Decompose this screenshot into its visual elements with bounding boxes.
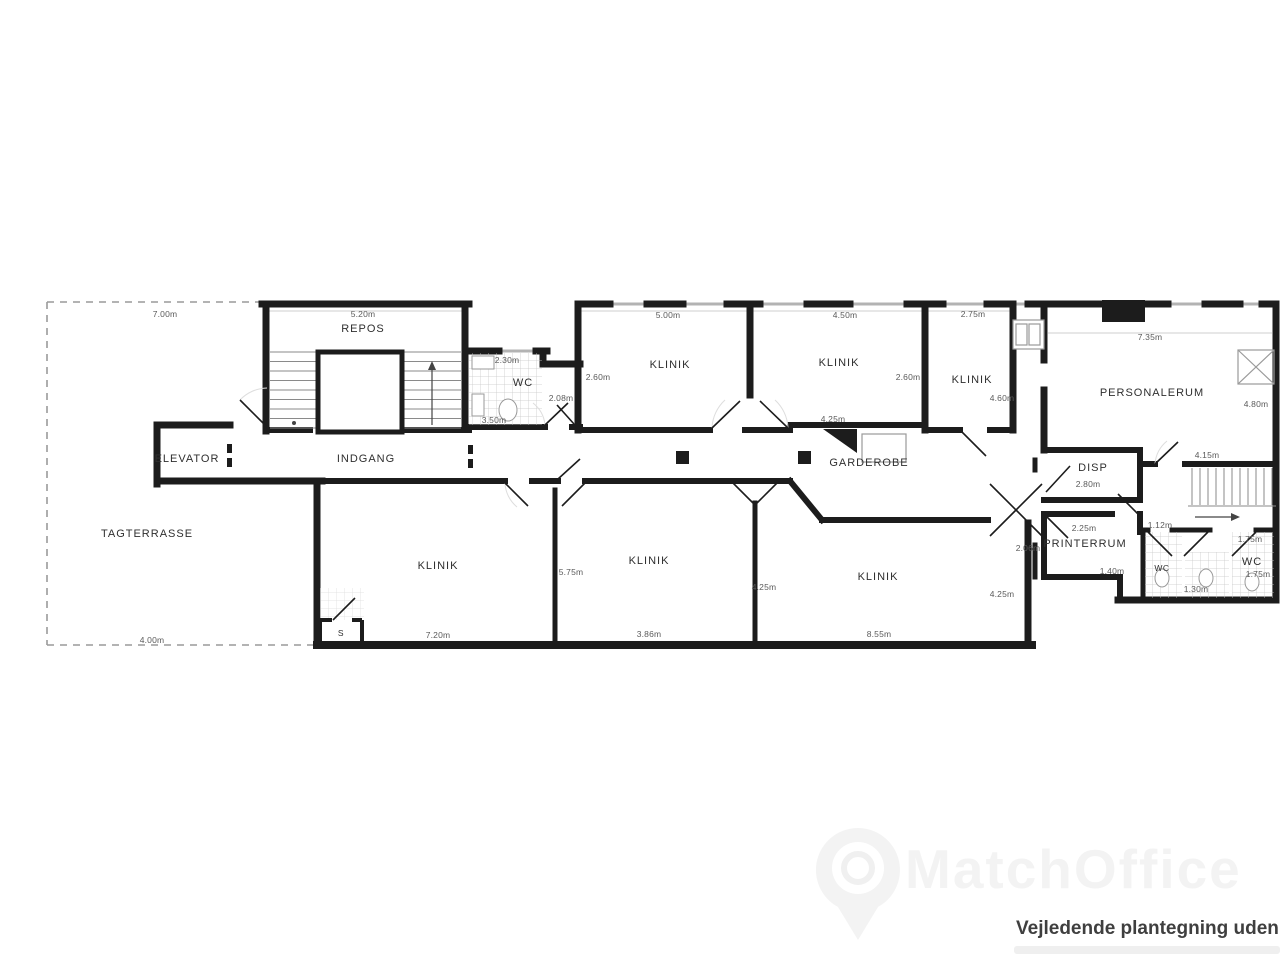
dim-klinik-b3-left: 4.25m	[752, 582, 777, 592]
dim-wc-r2-top: 1.75m	[1238, 534, 1263, 544]
floorplan-svg: TAGTERRASSE REPOS ELEVATOR INDGANG WC KL…	[0, 0, 1280, 960]
room-label-tagterrasse: TAGTERRASSE	[101, 528, 193, 540]
room-label-printerrum: PRINTERRUM	[1043, 538, 1126, 550]
repos-stairs	[270, 352, 461, 432]
room-label-personalerum: PERSONALERUM	[1100, 387, 1204, 399]
room-label-klinik-b3: KLINIK	[858, 571, 899, 583]
disclaimer-text: Vejledende plantegning uden a	[1016, 918, 1280, 939]
dim-klinik-b1-width: 7.20m	[426, 630, 451, 640]
dim-wc-niche: 2.08m	[549, 393, 574, 403]
garderobe-triangle	[823, 429, 857, 453]
dim-wc-width: 2.30m	[495, 355, 520, 365]
dim-klinik1-left: 2.60m	[586, 372, 611, 382]
room-label-indgang: INDGANG	[337, 453, 395, 465]
right-stairs	[1188, 468, 1276, 521]
room-label-s: S	[338, 628, 344, 638]
dim-terrace-width: 7.00m	[153, 309, 178, 319]
room-label-klinik-b1: KLINIK	[418, 560, 459, 572]
room-label-repos: REPOS	[341, 323, 385, 335]
dim-repos-width: 5.20m	[351, 309, 376, 319]
tagterrasse-area	[47, 302, 317, 645]
dim-klinik1-width: 5.00m	[656, 310, 681, 320]
dim-klinik-b2-left: 5.75m	[559, 567, 584, 577]
room-label-klinik-b2: KLINIK	[629, 555, 670, 567]
faded-text-remnant	[1014, 946, 1280, 954]
dim-personalerum-width: 7.35m	[1138, 332, 1163, 342]
skylight-box	[1238, 350, 1274, 384]
dim-klinik3-width: 2.75m	[961, 309, 986, 319]
dim-printerrum-width: 2.25m	[1072, 523, 1097, 533]
dim-terrace-bottom: 4.00m	[140, 635, 165, 645]
dim-klinik-b3-right: 4.25m	[990, 589, 1015, 599]
room-label-disp: DISP	[1078, 462, 1108, 474]
column	[798, 451, 811, 464]
dim-wc-r1-width: 1.12m	[1148, 520, 1173, 530]
room-label-klinik-t3: KLINIK	[952, 374, 993, 386]
dim-wc-bottom: 3.50m	[482, 415, 507, 425]
column	[676, 451, 689, 464]
dim-personalerum-bottom: 4.15m	[1195, 450, 1220, 460]
room-label-garderobe: GARDEROBE	[829, 457, 908, 469]
roof-protrusion	[1102, 300, 1145, 322]
room-label-elevator: ELEVATOR	[155, 453, 220, 465]
watermark-pin-icon	[816, 828, 900, 940]
dim-printerrum-left: 2.06m	[1016, 543, 1041, 553]
dim-klinik3-right: 4.60m	[990, 393, 1015, 403]
dimension-labels: 7.00m 5.20m 5.00m 4.50m 2.75m 7.35m 2.30…	[140, 309, 1271, 645]
room-label-wc-top: WC	[513, 377, 533, 389]
dim-wc-lobby-width: 1.30m	[1184, 584, 1209, 594]
dim-disp-width: 2.80m	[1076, 479, 1101, 489]
dim-klinik-b2-width: 3.86m	[637, 629, 662, 639]
watermark-brand: MatchOffice	[905, 838, 1242, 900]
room-label-klinik-t2: KLINIK	[819, 357, 860, 369]
room-label-klinik-t1: KLINIK	[650, 359, 691, 371]
dim-klinik2-width: 4.50m	[833, 310, 858, 320]
dim-garderobe-width: 4.25m	[821, 414, 846, 424]
shaft-room	[1013, 320, 1044, 349]
dim-personalerum-height: 4.80m	[1244, 399, 1269, 409]
floorplan-page: TAGTERRASSE REPOS ELEVATOR INDGANG WC KL…	[0, 0, 1280, 960]
dim-printerrum-bottom: 1.40m	[1100, 566, 1125, 576]
dim-wc-r2-right: 1.75m	[1246, 569, 1271, 579]
dim-klinik2-right: 2.60m	[896, 372, 921, 382]
dim-klinik-b3-width: 8.55m	[867, 629, 892, 639]
room-label-wc-r2: WC	[1242, 556, 1262, 568]
room-label-wc-r1: WC	[1154, 563, 1169, 573]
